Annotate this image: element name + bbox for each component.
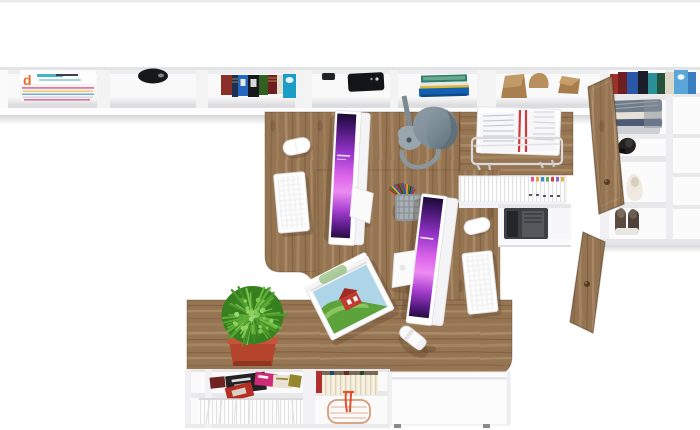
svg-text:d: d (23, 72, 32, 88)
